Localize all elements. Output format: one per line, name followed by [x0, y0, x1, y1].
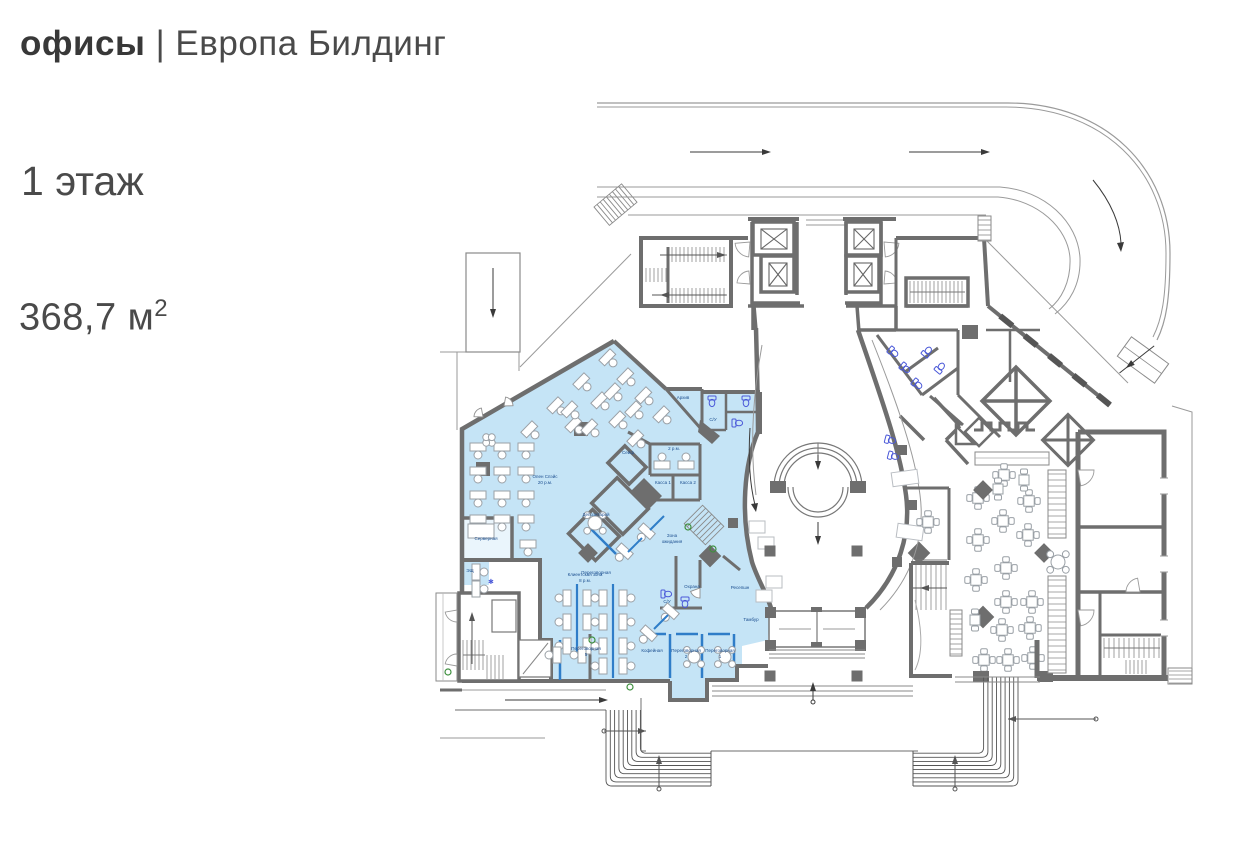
svg-text:С/У: С/У: [663, 599, 671, 604]
svg-text:2 р.м.: 2 р.м.: [668, 446, 680, 451]
svg-text:Переговорная: Переговорная: [705, 648, 735, 653]
svg-text:20 р.м.: 20 р.м.: [538, 480, 552, 485]
svg-text:Депозитарий: Депозитарий: [582, 511, 610, 517]
svg-text:Переговорная: Переговорная: [671, 648, 701, 653]
svg-text:Касса 2: Касса 2: [680, 480, 696, 485]
svg-text:ЭЩ: ЭЩ: [466, 568, 474, 573]
svg-text:Зона: Зона: [667, 533, 678, 538]
svg-text:Сейф: Сейф: [622, 449, 634, 455]
svg-text:Серверная: Серверная: [474, 536, 498, 541]
svg-text:Переговорная: Переговорная: [571, 646, 601, 651]
svg-text:Тамбур: Тамбур: [743, 617, 759, 622]
svg-text:Архив: Архив: [677, 395, 690, 400]
svg-text:✱: ✱: [488, 578, 494, 586]
svg-text:Опен Спэйс: Опен Спэйс: [533, 473, 559, 479]
svg-text:Кофейная: Кофейная: [641, 647, 663, 653]
svg-text:Касса 1: Касса 1: [655, 480, 671, 485]
svg-text:Клиентская зона: Клиентская зона: [568, 572, 603, 577]
svg-text:8 р.м.: 8 р.м.: [579, 578, 591, 583]
svg-text:Охрана: Охрана: [684, 584, 700, 589]
svg-text:С/У: С/У: [709, 417, 717, 422]
svg-text:ожидания: ожидания: [662, 539, 683, 544]
svg-text:Ресепшн: Ресепшн: [731, 585, 750, 590]
